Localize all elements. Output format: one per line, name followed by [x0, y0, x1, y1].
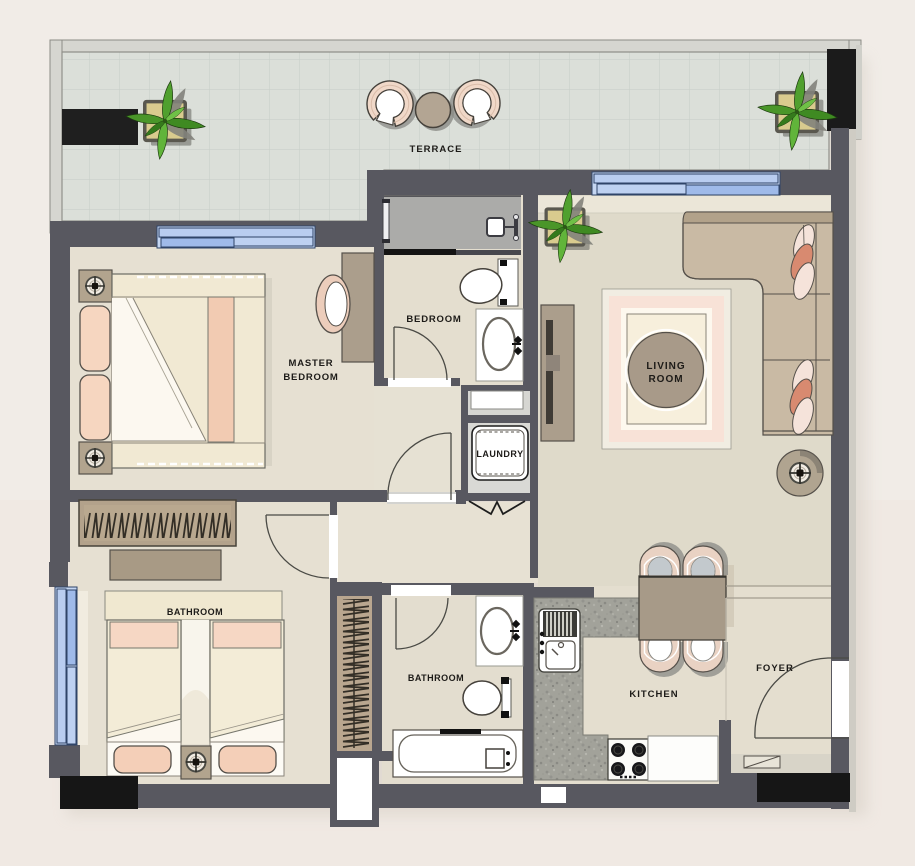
svg-text:TERRACE: TERRACE — [410, 144, 463, 155]
svg-text:MASTER: MASTER — [289, 358, 334, 369]
svg-text:BATHROOM: BATHROOM — [167, 607, 223, 617]
svg-text:LIVING: LIVING — [646, 361, 685, 372]
svg-text:KITCHEN: KITCHEN — [629, 689, 678, 700]
svg-text:BEDROOM: BEDROOM — [406, 314, 461, 325]
svg-text:FOYER: FOYER — [756, 663, 794, 674]
svg-text:BEDROOM: BEDROOM — [283, 372, 338, 383]
svg-text:LAUNDRY: LAUNDRY — [476, 449, 523, 459]
svg-text:BATHROOM: BATHROOM — [408, 673, 464, 683]
svg-text:ROOM: ROOM — [648, 374, 683, 385]
